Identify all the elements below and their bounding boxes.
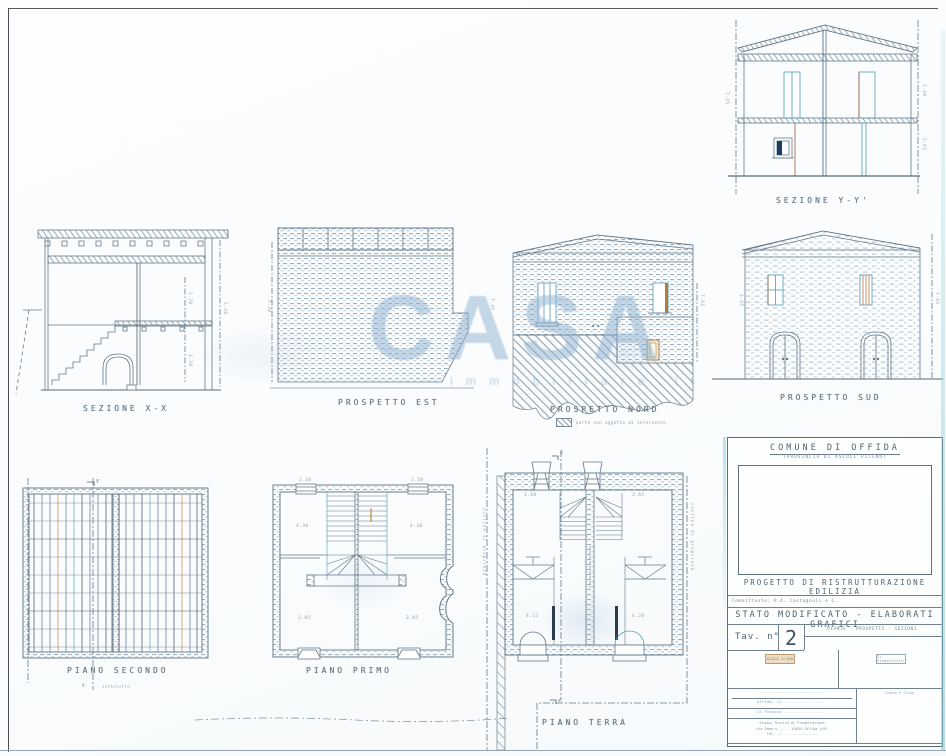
studio-block: Studio Tecnico di Progettazione Via Roma…	[730, 721, 854, 738]
section-marker: y	[82, 683, 85, 688]
dimension-text: 2.61	[921, 138, 926, 150]
sheet-border-left	[8, 8, 9, 752]
dimension-text: 5.20	[266, 300, 271, 312]
drawing-label: SEZIONE Y-Y'	[776, 196, 870, 205]
dimension-text: 2.45	[738, 294, 743, 306]
window-right	[860, 275, 872, 305]
title-block-empty-box	[738, 465, 932, 575]
drawing-piano-terra: x x confine di proprietà confine di prop…	[482, 448, 714, 750]
designer-box: Il Progettista	[876, 654, 906, 664]
title-block: COMUNE DI OFFIDA (PROVINCIA DI ASCOLI PI…	[727, 437, 943, 747]
dimension-text: 3.65	[632, 493, 644, 498]
province-subtitle: (PROVINCIA DI ASCOLI PICENO)	[728, 455, 942, 460]
dimension-text: 2.30	[299, 478, 311, 483]
dimension-text: 7.45	[489, 298, 494, 310]
party-wall	[355, 492, 358, 650]
info-row: Offida, lì .................	[728, 700, 854, 704]
drawing-sezione-xx: 5.20 2.70 1.50 SEZIONE X-X	[15, 222, 240, 422]
drawing-prospetto-nord: 7.45 7.65 PROSPETTO NORD parte non ogget…	[488, 228, 703, 438]
municipality-title: COMUNE DI OFFIDA	[728, 443, 942, 453]
tav-number: 2	[778, 626, 804, 650]
drawing-label: PIANO TERRA	[542, 718, 628, 727]
dimension-text: 7.65	[934, 292, 939, 304]
prospetto-est-linework	[262, 222, 480, 414]
drawing-piano-secondo: y PIANO SECONDO sottotetto y	[12, 478, 232, 694]
dimension-text: 1.50	[187, 354, 192, 366]
reference-dash-line	[195, 714, 515, 724]
arched-opening	[103, 354, 133, 385]
door-jamb	[552, 606, 555, 640]
upper-doors	[784, 72, 875, 118]
drawing-label: PROSPETTO SUD	[780, 393, 882, 402]
boundary-text: confine di proprietà	[690, 503, 695, 571]
lower-window	[772, 138, 794, 158]
drawing-sub-label: sottotetto	[102, 684, 130, 689]
hatch-legend-text: parte non oggetto di intervento	[576, 420, 666, 425]
client-row: Committente: P.A. Castagnoli e C.	[732, 599, 838, 604]
piano-primo-linework	[258, 478, 463, 683]
dimension-text: 4.15	[526, 614, 538, 619]
scale-box: SCALA 1:100	[765, 654, 795, 664]
dimension-text: 2.40	[921, 84, 926, 96]
floor-slab	[738, 118, 917, 123]
neighbor-wall	[497, 476, 505, 750]
dimension-text: 5.20	[222, 302, 227, 314]
dimension-text: 7.45	[724, 92, 729, 104]
scan-tint-right	[941, 30, 945, 750]
dimension-text: 2.50	[411, 478, 423, 483]
window-left	[536, 283, 558, 326]
wall-face	[278, 228, 468, 382]
section-marker: y	[96, 478, 99, 484]
hatch-legend-swatch	[556, 418, 572, 427]
roof	[738, 25, 917, 61]
drawing-sezione-yy: 7.45 2.40 2.61 SEZIONE Y-Y'	[712, 12, 942, 212]
sheet-border-bottom	[0, 750, 946, 751]
door-jamb	[615, 606, 618, 640]
boundary-text: confine di proprietà	[482, 508, 487, 576]
project-title: PROGETTO DI RISTRUTTURAZIONE EDILIZIA	[728, 578, 942, 596]
section-marker: x	[560, 450, 563, 456]
dimension-text: 3.60	[524, 493, 536, 498]
dimension-text: 4.30	[296, 524, 308, 529]
sheet-border-top	[8, 8, 938, 9]
contents-row: PIANTE - PROSPETTI - SEZIONI	[806, 627, 938, 632]
signature-box-header: Timbro e firma	[858, 691, 940, 695]
dimension-text: 3.85	[406, 616, 418, 621]
beam-ends	[45, 241, 203, 246]
dimension-text: 4.30	[410, 524, 422, 529]
stairs	[52, 326, 115, 385]
info-row: ...........................	[728, 690, 854, 694]
drawing-label: PROSPETTO NORD	[550, 405, 659, 414]
hatch-legend: parte non oggetto di intervento	[556, 418, 666, 427]
prospetto-sud-linework	[710, 228, 946, 404]
dimension-text: 7.65	[699, 294, 704, 306]
tav-label: Tav. n°	[735, 632, 780, 642]
dimension-text: 3.85	[298, 616, 310, 621]
drawing-label: PIANO SECONDO	[67, 666, 169, 675]
dimension-text: 4.20	[632, 614, 644, 619]
drawing-label: PROSPETTO EST	[338, 398, 440, 407]
drawing-piano-primo: 2.30 2.50 4.30 4.30 3.85 3.85 PIANO PRIM…	[258, 478, 463, 683]
piano-terra-linework	[482, 448, 714, 750]
drawing-prospetto-est: 5.20 PROSPETTO EST	[262, 222, 480, 414]
drawing-label: SEZIONE X-X	[83, 404, 169, 413]
window-small	[647, 340, 659, 360]
drawing-prospetto-sud: 2.45 7.65 PROSPETTO SUD	[710, 228, 946, 404]
ceiling-slab	[48, 256, 205, 263]
dimension-text: 2.70	[187, 292, 192, 304]
scanned-drawing-sheet: 7.45 2.40 2.61 SEZIONE Y-Y'	[0, 0, 946, 756]
section-marker: x	[558, 698, 561, 704]
sezione-yy-linework	[712, 12, 942, 212]
window-left	[768, 275, 783, 305]
floor-slab	[115, 321, 212, 326]
drawing-label: PIANO PRIMO	[306, 666, 392, 675]
info-row: Il Tecnico .................	[728, 710, 854, 714]
central-wall	[113, 494, 119, 652]
scan-tint-titleblock-left	[723, 437, 726, 607]
sezione-xx-linework	[15, 222, 240, 422]
roof-slab	[38, 230, 228, 238]
piano-secondo-linework	[12, 478, 232, 694]
